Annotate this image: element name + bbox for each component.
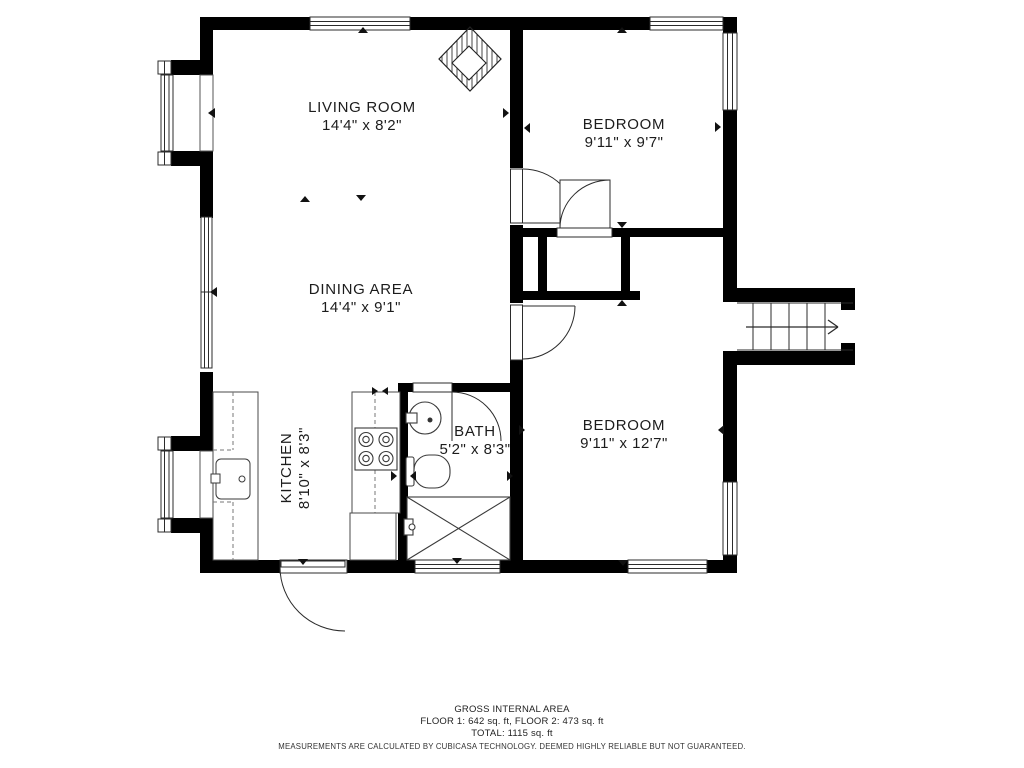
bedroom-bottom-name: BEDROOM — [580, 417, 668, 435]
bedroom2-bottom-window — [628, 560, 707, 573]
stairs — [737, 303, 853, 350]
kitchen-dims: 8'10" x 8'3" — [296, 398, 314, 538]
bay-window-living — [158, 61, 213, 165]
bedroom-top-name: BEDROOM — [583, 116, 665, 134]
door-entry — [280, 560, 347, 631]
disclaimer: MEASUREMENTS ARE CALCULATED BY CUBICASA … — [0, 741, 1024, 752]
floor-plan-page: LIVING ROOM 14'4" x 8'2" DINING AREA 14'… — [0, 0, 1024, 768]
living-room-label: LIVING ROOM 14'4" x 8'2" — [308, 99, 416, 135]
living-room-dims: 14'4" x 8'2" — [308, 117, 416, 135]
kitchen-label: KITCHEN 8'10" x 8'3" — [278, 398, 314, 538]
bath-sink-icon — [406, 402, 441, 434]
bedroom-bottom-label: BEDROOM 9'11" x 12'7" — [580, 417, 668, 453]
dining-area-label: DINING AREA 14'4" x 9'1" — [309, 281, 413, 317]
door-closet — [557, 180, 612, 237]
total-area: TOTAL: 1115 sq. ft — [0, 728, 1024, 740]
bedroom-bottom-dims: 9'11" x 12'7" — [580, 435, 668, 453]
kitchen-sink-icon — [211, 459, 250, 499]
floor-plan-drawing — [0, 0, 1024, 768]
gross-internal-area-title: GROSS INTERNAL AREA — [0, 704, 1024, 716]
bedroom-top-label: BEDROOM 9'11" x 9'7" — [583, 116, 665, 152]
dining-area-dims: 14'4" x 9'1" — [309, 299, 413, 317]
bath-label: BATH 5'2" x 8'3" — [439, 423, 510, 459]
bedroom-top-window — [650, 17, 723, 30]
door-bedroom-bottom — [511, 305, 576, 360]
bath-dims: 5'2" x 8'3" — [439, 441, 510, 459]
floor-areas: FLOOR 1: 642 sq. ft, FLOOR 2: 473 sq. ft — [0, 716, 1024, 728]
living-room-top-window — [310, 17, 410, 30]
toilet-icon — [406, 455, 450, 488]
footer: GROSS INTERNAL AREA FLOOR 1: 642 sq. ft,… — [0, 704, 1024, 752]
stairs-direction-arrow — [746, 320, 838, 334]
bedroom-right-window — [723, 33, 737, 110]
stove-icon — [355, 428, 397, 470]
dining-area-name: DINING AREA — [309, 281, 413, 299]
dining-left-window — [201, 217, 212, 368]
shower-icon — [404, 497, 510, 560]
bay-window-kitchen — [158, 437, 213, 532]
kitchen-name: KITCHEN — [278, 398, 296, 538]
bath-name: BATH — [439, 423, 510, 441]
fireplace — [439, 27, 501, 91]
living-room-name: LIVING ROOM — [308, 99, 416, 117]
bedroom2-right-window — [723, 482, 737, 555]
bedroom-top-dims: 9'11" x 9'7" — [583, 134, 665, 152]
